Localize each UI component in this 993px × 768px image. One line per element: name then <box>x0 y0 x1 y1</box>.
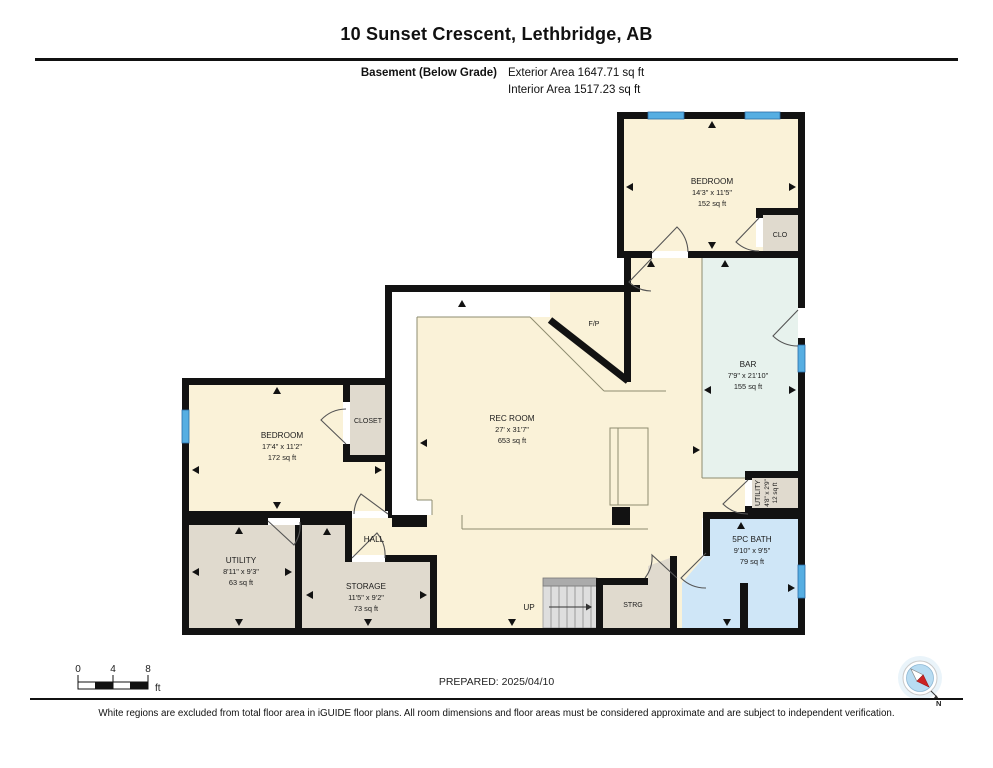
window-bar <box>798 345 805 372</box>
hall-label: HALL <box>364 535 385 544</box>
window-bedroom1 <box>182 410 189 443</box>
rec-room-area: 653 sq ft <box>498 436 526 445</box>
storage-area: 73 sq ft <box>354 604 378 613</box>
stairs-up-label: UP <box>523 603 535 612</box>
stairs <box>543 578 597 628</box>
utility2-name: UTILITY <box>755 480 762 506</box>
floor-plan-drawing: BEDROOM 14'3" x 11'5" 152 sq ft CLO BAR … <box>0 0 993 768</box>
scale-tick-0: 0 <box>75 664 81 675</box>
bedroom1-name: BEDROOM <box>261 431 303 440</box>
window-bedroom2-a <box>648 112 684 119</box>
utility2-label-group: UTILITY 4'8" x 2'9" 12 sq ft <box>755 479 779 507</box>
bedroom2-area: 152 sq ft <box>698 199 726 208</box>
utility2-area: 12 sq ft <box>772 482 779 503</box>
bedroom2-dims: 14'3" x 11'5" <box>692 188 732 197</box>
scale-tick-8: 8 <box>145 664 151 675</box>
storage-name: STORAGE <box>346 582 386 591</box>
fireplace-label: F/P <box>589 321 600 328</box>
bar-dims: 7'9" x 21'10" <box>728 371 769 380</box>
rec-room-dims: 27' x 31'7" <box>495 425 529 434</box>
storage-dims: 11'5" x 9'2" <box>348 593 384 602</box>
utility-area: 63 sq ft <box>229 578 253 587</box>
disclaimer-text: White regions are excluded from total fl… <box>0 708 993 719</box>
utility-dims: 8'11" x 9'3" <box>223 567 259 576</box>
bar-area: 155 sq ft <box>734 382 762 391</box>
bath-name: 5PC BATH <box>732 535 772 544</box>
bath-dims: 9'10" x 9'5" <box>734 546 771 555</box>
closet-label: CLOSET <box>354 418 383 425</box>
prepared-date: PREPARED: 2025/04/10 <box>0 676 993 688</box>
floor-plan-page: 10 Sunset Crescent, Lethbridge, AB Basem… <box>0 0 993 768</box>
strg-label: STRG <box>623 602 642 609</box>
window-bedroom2-b <box>745 112 780 119</box>
bedroom2-name: BEDROOM <box>691 177 733 186</box>
room-utility <box>189 525 295 628</box>
bedroom1-area: 172 sq ft <box>268 453 296 462</box>
clo-label: CLO <box>773 232 788 239</box>
utility-name: UTILITY <box>226 556 257 565</box>
bath-area: 79 sq ft <box>740 557 764 566</box>
window-bath <box>798 565 805 598</box>
utility2-dims: 4'8" x 2'9" <box>764 479 771 507</box>
bedroom1-dims: 17'4" x 11'2" <box>262 442 302 451</box>
bar-name: BAR <box>740 360 757 369</box>
scale-tick-4: 4 <box>110 664 116 675</box>
compass-north-label: N <box>936 699 941 708</box>
footer-divider <box>30 698 963 700</box>
rec-room-name: REC ROOM <box>489 414 534 423</box>
structural-post <box>612 507 630 525</box>
